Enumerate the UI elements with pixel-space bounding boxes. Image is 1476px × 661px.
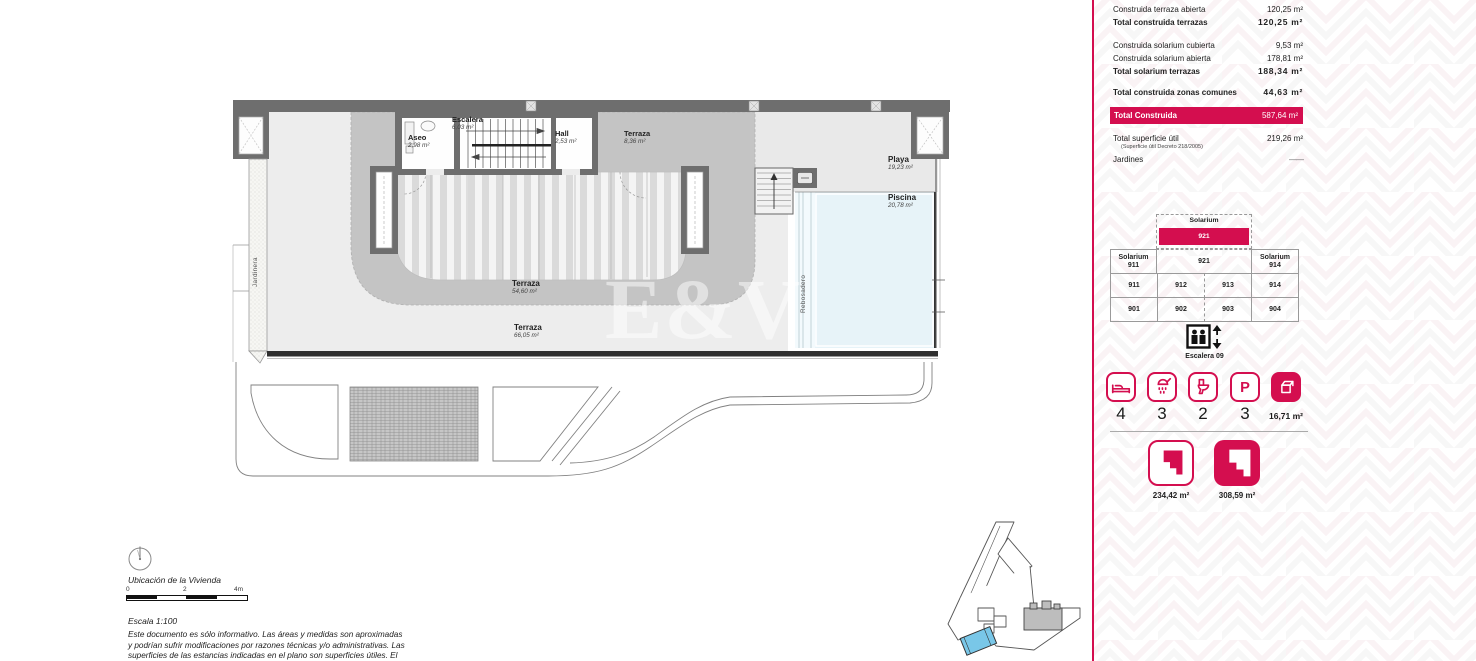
room-label-aseo: Aseo 2,98 m²	[408, 133, 429, 150]
plan-area-1: 234,42 m²	[1140, 491, 1202, 500]
selector-cell-921[interactable]: 921	[1156, 249, 1252, 274]
room-label-terraza-mid: Terraza 54,60 m²	[512, 279, 540, 296]
scale-tick-2: 2	[183, 586, 187, 593]
storage-icon	[1271, 372, 1301, 402]
room-label-terraza-top: Terraza 8,36 m²	[624, 129, 650, 146]
floorplan-filled-icon[interactable]	[1214, 440, 1260, 486]
skimmer-box	[793, 168, 817, 188]
room-label-escalera: Escalera 6,03 m²	[452, 115, 483, 132]
shower-icon	[1147, 372, 1177, 402]
window-right	[681, 166, 709, 254]
total-construida-bar: Total Construida 587,64 m²	[1110, 107, 1303, 124]
location-map	[938, 520, 1090, 661]
toilet-icon	[1188, 372, 1218, 402]
util-label: Total superficie útil	[1113, 134, 1179, 143]
measure-row-total: Total solarium terrazas 188,34 m²	[1110, 65, 1303, 78]
room-label-piscina: Piscina 20,78 m²	[888, 193, 916, 210]
measure-row-total: Total construida terrazas 120,25 m²	[1110, 16, 1303, 29]
selector-cell-solarium-914[interactable]: Solarium 914	[1251, 249, 1299, 274]
bedrooms-count: 4	[1104, 404, 1138, 424]
measure-row: Construida solarium abierta 178,81 m²	[1110, 52, 1303, 65]
scale-bar: 0 2 4m	[126, 586, 266, 608]
lower-outline	[236, 362, 932, 476]
elevator-icon	[1186, 324, 1224, 350]
location-label: Ubicación de la Vivienda	[128, 575, 221, 585]
measure-row: Construida solarium cubierta 9,53 m²	[1110, 39, 1303, 52]
parking-icon: P	[1230, 372, 1260, 402]
watermark: E&V	[605, 263, 802, 355]
selector-cell-902[interactable]: 902	[1157, 297, 1205, 322]
selector-cell-912[interactable]: 912	[1157, 273, 1205, 298]
selector-cell-904[interactable]: 904	[1251, 297, 1299, 322]
util-sub-label: (Superficie útil Decreto 218/2005)	[1121, 144, 1203, 150]
window-left	[370, 166, 398, 254]
measurements-panel: Construida terraza abierta 120,25 m² Tot…	[1110, 0, 1303, 166]
plan-area-2: 308,59 m²	[1206, 491, 1268, 500]
page: E&V Aseo 2,98 m² Escalera 6,03 m² Hall 2…	[0, 0, 1476, 661]
rebosadero-label: Rebosadero	[800, 275, 807, 313]
disclaimer: Este documento es sólo informativo. Las …	[128, 630, 405, 661]
floor-plan: E&V Aseo 2,98 m² Escalera 6,03 m² Hall 2…	[230, 95, 962, 497]
selector-cell-903[interactable]: 903	[1204, 297, 1252, 322]
bed-icon	[1106, 372, 1136, 402]
sidebar-divider	[1110, 431, 1308, 432]
unit-selector: Solarium 921 Solarium 911 921 Solarium 9…	[1110, 214, 1299, 366]
sidebar-accent-line	[1092, 0, 1094, 661]
selected-unit-921[interactable]: 921	[1159, 228, 1249, 245]
floor-plan-svg	[230, 95, 962, 497]
room-label-hall: Hall 2,53 m²	[555, 129, 576, 146]
util-value: 219,26 m²	[1267, 134, 1303, 143]
svg-text:P: P	[1240, 380, 1250, 396]
measure-row: Construida terraza abierta 120,25 m²	[1110, 3, 1303, 16]
jardinera-label: Jardinera	[252, 257, 259, 287]
room-label-terraza-low: Terraza 66,05 m²	[514, 323, 542, 340]
toilets-count: 2	[1186, 404, 1220, 424]
storage-area: 16,71 m²	[1263, 411, 1309, 421]
superficie-util-row: Total superficie útil (Superficie útil D…	[1110, 134, 1303, 150]
shaft-left	[233, 112, 269, 159]
stairs-label: Escalera 09	[1110, 353, 1299, 360]
scale-tick-4m: 4m	[234, 586, 243, 593]
selector-cell-901[interactable]: 901	[1110, 297, 1158, 322]
selector-solarium-top[interactable]: Solarium 921	[1156, 214, 1252, 249]
scale-tick-0: 0	[126, 586, 130, 593]
selector-cell-911[interactable]: 911	[1110, 273, 1158, 298]
jardinera-strip	[233, 159, 267, 363]
jardines-row: Jardines ——	[1110, 154, 1303, 166]
floorplan-outline-icon[interactable]	[1148, 440, 1194, 486]
selector-cell-913[interactable]: 913	[1204, 273, 1252, 298]
external-stair	[755, 168, 793, 214]
pool	[795, 192, 935, 348]
shaft-right	[911, 112, 949, 159]
feature-icons: P 4 3 2 3 16,71 m²	[1098, 372, 1322, 432]
measure-row-total: Total construida zonas comunes 44,63 m²	[1110, 86, 1303, 99]
scale-label: Escala 1:100	[128, 616, 177, 626]
selector-cell-solarium-911[interactable]: Solarium 911	[1110, 249, 1157, 274]
parking-count: 3	[1228, 404, 1262, 424]
north-icon	[126, 544, 154, 574]
bathrooms-count: 3	[1145, 404, 1179, 424]
room-label-playa: Playa 19,23 m²	[888, 155, 913, 172]
selector-cell-914[interactable]: 914	[1251, 273, 1299, 298]
